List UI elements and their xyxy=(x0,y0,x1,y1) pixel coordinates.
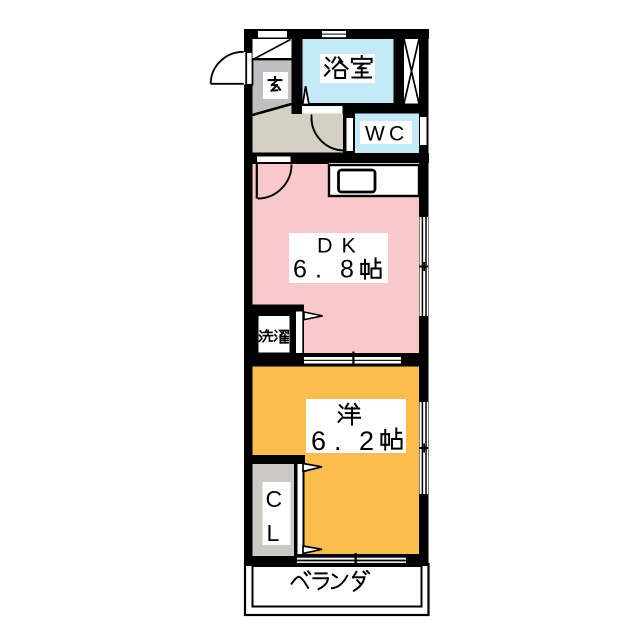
svg-text:C: C xyxy=(266,486,283,512)
svg-text:.: . xyxy=(315,256,322,284)
svg-text:C: C xyxy=(389,123,404,146)
svg-text:6: 6 xyxy=(311,426,326,456)
svg-text:6: 6 xyxy=(293,256,307,284)
svg-text:L: L xyxy=(267,520,280,546)
svg-text:8: 8 xyxy=(340,256,354,284)
svg-text:K: K xyxy=(342,234,357,258)
svg-text:D: D xyxy=(317,234,333,258)
svg-text:2: 2 xyxy=(359,426,374,456)
svg-text:W: W xyxy=(365,123,385,146)
svg-text:.: . xyxy=(334,426,342,456)
